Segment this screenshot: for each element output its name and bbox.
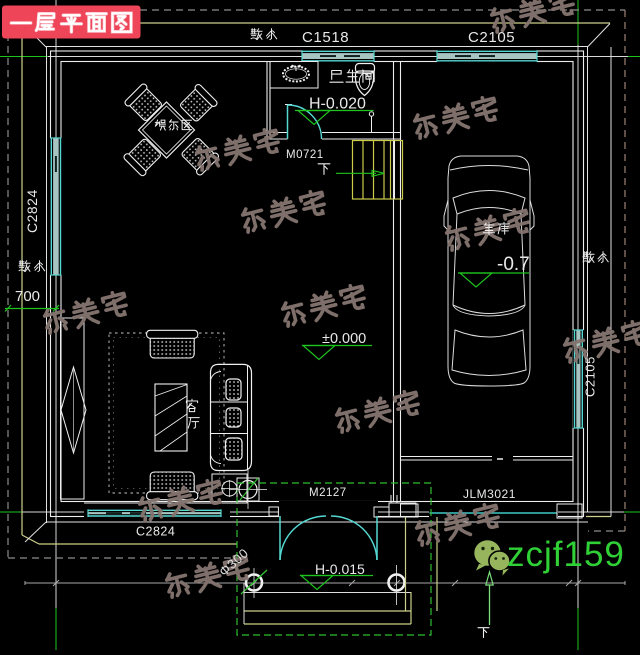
svg-text:±0.000: ±0.000 [322,331,366,347]
svg-text:C1518: C1518 [302,29,349,46]
svg-text:M2127: M2127 [309,487,347,499]
svg-text:C2824: C2824 [136,525,175,539]
svg-text:C2824: C2824 [24,189,40,233]
svg-text:C2105: C2105 [583,356,598,397]
svg-text:JLM3021: JLM3021 [463,487,516,501]
svg-text:H-0.015: H-0.015 [315,561,365,577]
svg-text:-0.7: -0.7 [497,254,530,275]
svg-text:C2105: C2105 [468,29,515,46]
svg-text:zcjf159: zcjf159 [507,535,625,574]
svg-text:M0721: M0721 [286,149,324,161]
svg-text:700: 700 [15,288,40,305]
